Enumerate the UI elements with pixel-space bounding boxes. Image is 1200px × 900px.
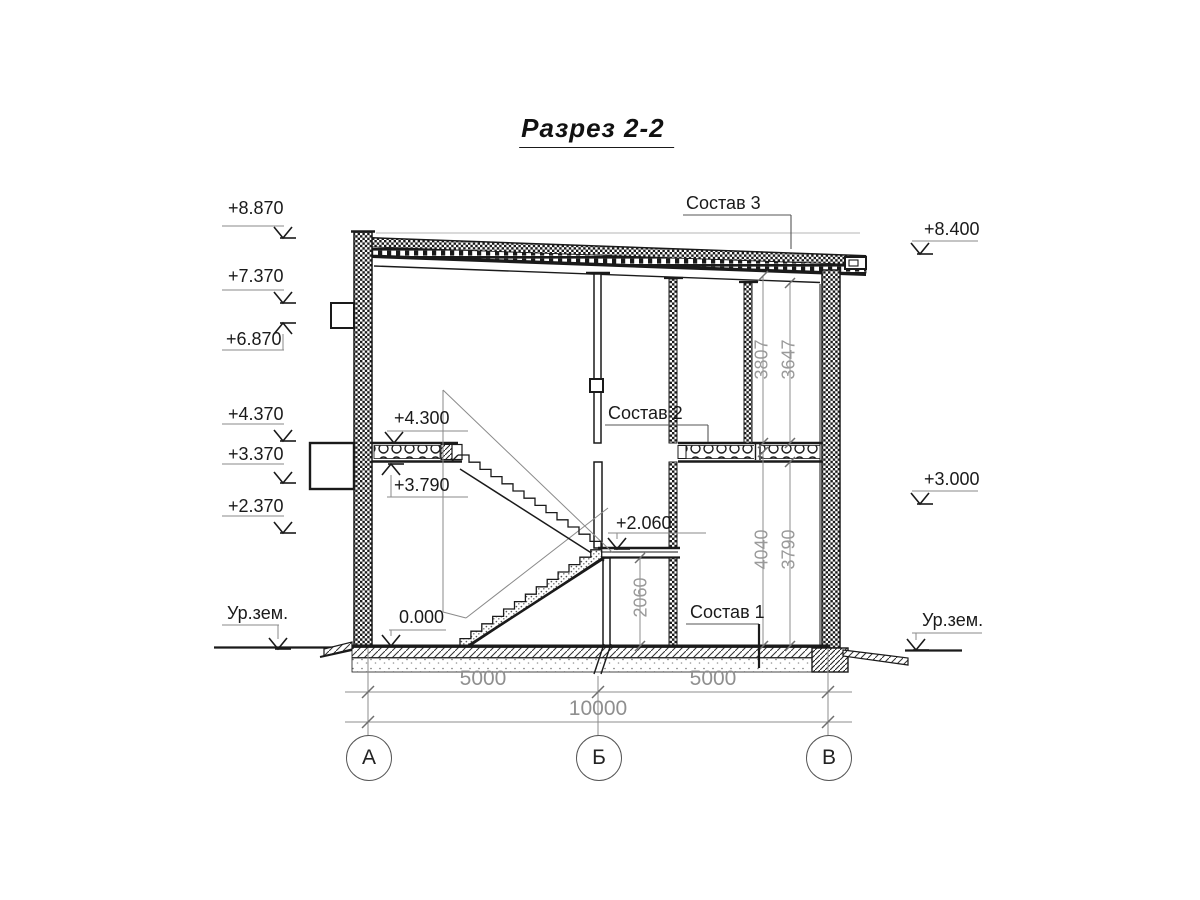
- dim-upper-3647: 3647: [779, 325, 800, 395]
- dim-upper-3807: 3807: [752, 325, 773, 395]
- layer-label-floor2: Состав 2: [608, 404, 683, 424]
- elevation-mark-left-6870: +6.870: [226, 330, 282, 350]
- elevation-mark-0000: 0.000: [399, 608, 444, 628]
- ground-level-label-left: Ур.зем.: [227, 604, 288, 624]
- drawing-sheet: Разрез 2-2 +8.870 +7.370 +6.870 +4.370 +…: [0, 0, 1200, 900]
- ground-level-label-right: Ур.зем.: [922, 611, 983, 631]
- elevation-mark-right-8400: +8.400: [924, 220, 980, 240]
- drawing-title: Разрез 2-2: [519, 113, 674, 148]
- dim-total-span: 10000: [548, 697, 648, 721]
- elevation-mark-left-8870: +8.870: [228, 199, 284, 219]
- elevation-mark-left-2370: +2.370: [228, 497, 284, 517]
- layer-label-floor1: Состав 1: [690, 603, 765, 623]
- elevation-mark-3790: +3.790: [394, 476, 450, 496]
- elevation-mark-left-3370: +3.370: [228, 445, 284, 465]
- dim-lower-4040: 4040: [752, 515, 773, 585]
- dim-lower-3790: 3790: [779, 515, 800, 585]
- dim-span-b-v: 5000: [673, 667, 753, 691]
- elevation-mark-left-7370: +7.370: [228, 267, 284, 287]
- dim-span-a-b: 5000: [443, 667, 523, 691]
- layer-label-roof: Состав 3: [686, 194, 761, 214]
- elevation-mark-left-4370: +4.370: [228, 405, 284, 425]
- axis-bubble-b: Б: [576, 735, 622, 781]
- axis-bubble-a: А: [346, 735, 392, 781]
- elevation-mark-2060: +2.060: [616, 514, 672, 534]
- dim-landing-2060: 2060: [631, 563, 652, 633]
- axis-bubble-v: В: [806, 735, 852, 781]
- elevation-mark-right-3000: +3.000: [924, 470, 980, 490]
- elevation-mark-4300: +4.300: [394, 409, 450, 429]
